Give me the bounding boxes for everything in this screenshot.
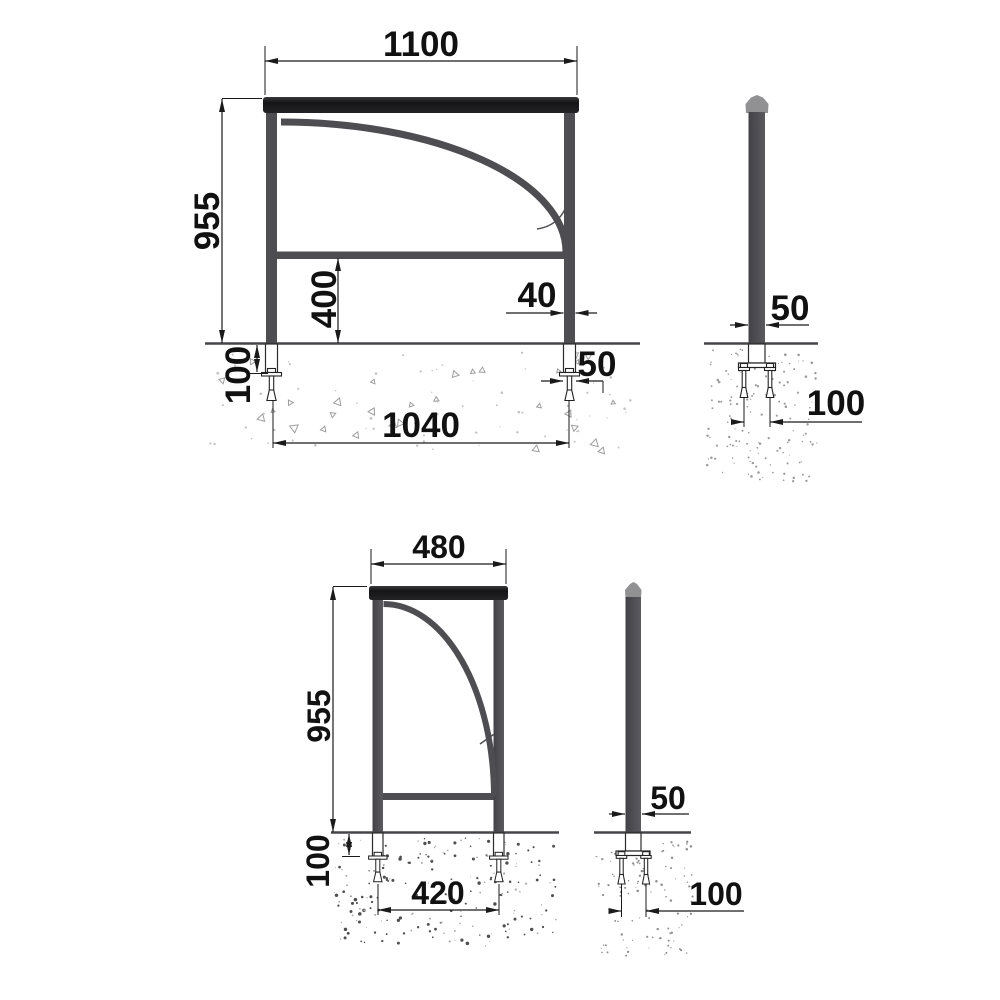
concrete-speckle (603, 944, 604, 945)
concrete-speckle (617, 920, 619, 922)
concrete-speckle (343, 839, 345, 841)
concrete-speckle (778, 401, 780, 403)
concrete-speckle (521, 352, 523, 354)
concrete-speckle (257, 414, 264, 422)
concrete-speckle (368, 408, 374, 415)
concrete-speckle (527, 849, 529, 851)
concrete-speckle (399, 916, 402, 919)
concrete-speckle (530, 928, 533, 931)
concrete-speckle (517, 843, 520, 846)
concrete-speckle (442, 852, 443, 853)
concrete-speckle (665, 896, 667, 898)
post (626, 597, 642, 833)
concrete-speckle (667, 928, 669, 930)
concrete-speckle (397, 942, 400, 945)
concrete-speckle (662, 850, 664, 852)
concrete-speckle (596, 856, 597, 857)
concrete-speckle (434, 847, 436, 849)
concrete-speckle (366, 897, 367, 898)
concrete-speckle (361, 896, 364, 899)
concrete-speckle (509, 881, 512, 884)
concrete-speckle (465, 838, 466, 839)
concrete-speckle (347, 932, 350, 935)
concrete-speckle (619, 887, 621, 889)
right-post (494, 599, 505, 833)
figure-front-view-small: 480 955 100 420 (300, 529, 559, 947)
concrete-speckle (629, 399, 632, 402)
concrete-speckle (338, 901, 340, 903)
concrete-speckle (346, 884, 348, 886)
concrete-speckle (487, 840, 490, 843)
concrete-speckle (618, 447, 620, 449)
concrete-speckle (551, 894, 554, 897)
concrete-speckle (417, 857, 419, 859)
concrete-speckle (797, 354, 800, 357)
concrete-speckle (493, 872, 495, 874)
concrete-speckle (811, 443, 813, 445)
concrete-speckle (789, 418, 791, 420)
post-cap (746, 95, 769, 113)
concrete-speckle (748, 432, 750, 434)
concrete-speckle (459, 923, 461, 925)
concrete-speckle (802, 360, 803, 361)
concrete-speckle (386, 933, 388, 935)
concrete-speckle (386, 919, 388, 921)
concrete-speckle (710, 362, 711, 363)
concrete-speckle (787, 381, 789, 383)
concrete-speckle (263, 413, 265, 415)
concrete-speckle (623, 407, 626, 410)
right-post (564, 112, 575, 343)
concrete-speckle (449, 940, 451, 942)
concrete-speckle (537, 932, 539, 934)
concrete-speckle (805, 480, 807, 482)
concrete-speckle (479, 445, 480, 446)
concrete-speckle (521, 412, 523, 414)
concrete-speckle (338, 866, 341, 869)
concrete-speckle (639, 875, 641, 877)
concrete-speckle (515, 889, 517, 891)
concrete-speckle (487, 935, 490, 938)
concrete-speckle (344, 936, 347, 939)
concrete-speckle (646, 936, 648, 938)
mid-rail (277, 252, 564, 260)
concrete-speckle (432, 448, 434, 450)
concrete-speckle (736, 386, 738, 388)
concrete-speckle (787, 442, 789, 444)
concrete-speckle (334, 892, 335, 893)
concrete-speckle (507, 891, 509, 893)
concrete-speckle (350, 910, 353, 913)
dim-label-embed-depth: 100 (300, 834, 336, 887)
concrete-speckle (635, 857, 637, 859)
concrete-speckle (670, 867, 672, 869)
concrete-speckle (371, 379, 375, 384)
concrete-speckle (794, 404, 795, 405)
concrete-speckle (402, 354, 404, 356)
concrete-speckle (431, 868, 433, 870)
concrete-speckle (783, 384, 785, 386)
curved-brace (384, 604, 495, 797)
concrete-speckle (572, 425, 579, 431)
concrete-speckle (712, 349, 714, 351)
concrete-speckle (801, 461, 802, 462)
anchor-bolt (560, 369, 580, 401)
concrete-speckle (454, 940, 455, 941)
concrete-speckle (810, 441, 812, 443)
concrete-speckle (784, 353, 787, 356)
concrete-speckle (452, 371, 459, 378)
concrete-speckle (383, 876, 386, 879)
dim-label-bolt-spacing: 100 (807, 384, 865, 423)
concrete-speckle (670, 899, 672, 901)
dim-label-bolt-spacing: 100 (689, 876, 742, 912)
concrete-speckle (479, 838, 480, 839)
concrete-speckle (251, 438, 253, 440)
concrete-speckle (681, 924, 683, 926)
concrete-speckle (532, 445, 539, 452)
concrete-speckle (503, 872, 505, 874)
concrete-speckle (803, 435, 804, 436)
barrier-drawing-svg: 1100 955 400 40 100 50 1040 50 (0, 0, 1000, 1000)
concrete-speckle (712, 407, 714, 409)
concrete-speckle (664, 954, 665, 955)
concrete-speckle (747, 406, 749, 408)
concrete-speckle (674, 846, 675, 847)
concrete-speckle (245, 426, 247, 428)
concrete-speckle (437, 401, 439, 403)
concrete-speckle (793, 368, 795, 370)
concrete-speckle (758, 453, 759, 454)
concrete-speckle (805, 433, 807, 435)
concrete-speckle (429, 918, 431, 920)
concrete-speckle (750, 450, 751, 451)
concrete-speckle (624, 887, 626, 889)
concrete-speckle (344, 928, 347, 931)
concrete-speckle (431, 370, 433, 372)
concrete-speckle (621, 933, 623, 935)
concrete-speckle (366, 428, 367, 429)
concrete-speckle (802, 474, 804, 476)
concrete-speckle (671, 932, 673, 934)
concrete-speckle (729, 444, 731, 446)
left-post (266, 112, 277, 343)
concrete-speckle (489, 941, 490, 942)
concrete-speckle (765, 457, 767, 459)
concrete-speckle (788, 439, 790, 441)
curved-brace (281, 122, 566, 252)
concrete-speckle (690, 845, 693, 848)
concrete-speckle (637, 883, 638, 884)
concrete-speckle (611, 400, 615, 404)
concrete-speckle (366, 927, 367, 928)
concrete-speckle (431, 392, 432, 393)
concrete-speckle (783, 473, 785, 475)
dim-label-post-depth: 50 (771, 289, 810, 328)
concrete-speckle (525, 883, 527, 885)
concrete-speckle (609, 394, 611, 396)
concrete-speckle (731, 379, 732, 380)
concrete-speckle (267, 442, 269, 444)
concrete-speckle (341, 922, 342, 923)
post (749, 112, 766, 344)
concrete-speckle (368, 883, 370, 885)
concrete-speckle (335, 390, 336, 391)
concrete-speckle (778, 363, 779, 364)
concrete-speckle (736, 403, 738, 405)
concrete-speckle (735, 352, 737, 354)
concrete-speckle (607, 884, 609, 886)
concrete-speckle (533, 846, 535, 848)
concrete-speckle (727, 421, 729, 423)
concrete-speckle (519, 891, 521, 893)
concrete-speckle (784, 403, 786, 405)
concrete-speckle (541, 914, 542, 915)
concrete-speckle (570, 413, 571, 414)
technical-drawing-canvas: 1100 955 400 40 100 50 1040 50 (0, 0, 1000, 1000)
concrete-speckle (806, 423, 808, 425)
concrete-speckle (381, 920, 382, 921)
concrete-speckle (517, 411, 520, 414)
concrete-speckle (499, 894, 501, 896)
concrete-speckle (356, 902, 358, 904)
concrete-speckle (541, 904, 542, 905)
concrete-speckle (750, 399, 751, 400)
concrete-speckle (343, 844, 346, 847)
concrete-speckle (623, 939, 624, 940)
concrete-speckle (516, 863, 517, 864)
concrete-speckle (589, 415, 590, 416)
concrete-speckle (671, 857, 673, 859)
concrete-speckle (373, 870, 375, 872)
concrete-speckle (612, 874, 613, 875)
concrete-speckle (538, 864, 540, 866)
concrete-speckle (779, 381, 781, 383)
dim-label-overall-width: 1100 (383, 25, 459, 64)
concrete-speckle (776, 450, 778, 452)
concrete-speckle (423, 842, 426, 845)
concrete-speckle (731, 396, 733, 398)
concrete-speckle (505, 861, 508, 864)
concrete-speckle (549, 882, 550, 883)
concrete-speckle (638, 860, 640, 862)
concrete-speckle (342, 890, 345, 893)
concrete-speckle (383, 864, 385, 866)
concrete-speckle (417, 926, 419, 928)
concrete-speckle (434, 928, 437, 931)
concrete-speckle (476, 856, 478, 858)
concrete-speckle (668, 940, 670, 942)
concrete-speckle (427, 923, 430, 926)
concrete-speckle (421, 862, 423, 864)
concrete-speckle (706, 435, 708, 437)
concrete-speckle (460, 939, 463, 942)
concrete-speckle (746, 443, 748, 445)
dim-label-anchor-width: 50 (578, 345, 617, 384)
concrete-speckle (619, 895, 621, 897)
concrete-speckle (808, 476, 810, 478)
concrete-speckle (389, 878, 390, 879)
concrete-speckle (714, 458, 716, 460)
concrete-speckle (485, 945, 486, 946)
concrete-speckle (793, 477, 795, 479)
concrete-speckle (598, 886, 599, 887)
concrete-speckle (374, 914, 376, 916)
concrete-speckle (479, 934, 480, 935)
concrete-speckle (553, 878, 556, 881)
concrete-speckle (648, 917, 650, 919)
concrete-speckle (757, 385, 759, 387)
concrete-speckle (504, 841, 506, 843)
concrete-speckle (506, 852, 509, 855)
concrete-speckle (290, 425, 299, 433)
concrete-speckle (500, 426, 501, 427)
figure-side-view-large: 50 100 (704, 95, 865, 482)
anchor-bolt (641, 852, 651, 884)
concrete-speckle (525, 368, 527, 370)
concrete-speckle (748, 474, 749, 475)
concrete-speckle (514, 910, 515, 911)
concrete-speckle (789, 455, 790, 456)
concrete-speckle (431, 859, 433, 861)
concrete-speckle (427, 855, 429, 857)
concrete-speckle (518, 881, 520, 883)
concrete-speckle (770, 464, 771, 465)
concrete-speckle (708, 458, 709, 459)
concrete-speckle (516, 431, 518, 433)
concrete-speckle (513, 913, 514, 914)
concrete-speckle (783, 371, 785, 373)
concrete-speckle (751, 395, 753, 397)
concrete-speckle (750, 475, 753, 478)
concrete-speckle (373, 428, 375, 430)
concrete-speckle (576, 419, 577, 420)
concrete-speckle (690, 913, 692, 915)
concrete-speckle (625, 412, 626, 413)
concrete-speckle (735, 428, 736, 429)
concrete-speckle (403, 932, 405, 934)
concrete-speckle (757, 471, 760, 474)
concrete-speckle (710, 364, 712, 366)
concrete-speckle (574, 441, 576, 443)
concrete-speckle (755, 384, 757, 386)
concrete-speckle (477, 881, 480, 884)
concrete-speckle (443, 932, 445, 934)
concrete-speckle (353, 432, 359, 438)
anchor-bolt (739, 364, 750, 398)
concrete-speckle (665, 866, 667, 868)
dim-label-embed-depth: 100 (219, 346, 258, 404)
concrete-speckle (435, 846, 436, 847)
concrete-speckle (677, 844, 679, 846)
concrete-speckle (707, 428, 709, 430)
top-rail-bar (369, 586, 508, 600)
post-embedded-stub (749, 344, 766, 363)
concrete-speckle (711, 399, 713, 401)
concrete-speckle (507, 936, 509, 938)
concrete-speckle (405, 883, 407, 885)
concrete-speckle (337, 904, 339, 906)
concrete-speckle (412, 913, 414, 915)
concrete-speckle (728, 436, 730, 438)
concrete-speckle (530, 918, 532, 920)
concrete-speckle (321, 426, 326, 432)
concrete-speckle (753, 393, 755, 395)
anchor-bolt (765, 364, 776, 398)
concrete-speckle (538, 860, 540, 862)
concrete-speckle (470, 846, 472, 848)
concrete-speckle (514, 918, 517, 921)
concrete-speckle (566, 429, 567, 430)
concrete-speckle (369, 895, 372, 898)
concrete-speckle (350, 895, 351, 896)
concrete-speckle (686, 841, 688, 843)
concrete-speckle (460, 915, 462, 917)
concrete-speckle (364, 942, 366, 944)
concrete-speckle (503, 924, 506, 927)
concrete-speckle (432, 936, 434, 938)
concrete-speckle (375, 372, 378, 375)
concrete-speckle (386, 877, 388, 879)
concrete-speckle (649, 885, 650, 886)
concrete-speckle (679, 927, 680, 928)
concrete-speckle (606, 417, 607, 418)
concrete-speckle (720, 401, 722, 403)
concrete-speckle (334, 398, 341, 406)
concrete-speckle (709, 437, 710, 438)
concrete-speckle (755, 466, 757, 468)
concrete-speckle (490, 878, 492, 880)
concrete-speckle (686, 843, 688, 845)
concrete-speckle (462, 405, 464, 407)
concrete-speckle (442, 364, 444, 366)
concrete-speckle (505, 844, 506, 845)
concrete-speckle (545, 909, 547, 911)
concrete-speckle (759, 442, 761, 444)
concrete-speckle (385, 845, 387, 847)
concrete-speckle (738, 356, 739, 357)
concrete-speckle (711, 385, 713, 387)
concrete-speckle (288, 361, 289, 362)
concrete-speckle (792, 480, 794, 482)
concrete-speckle (610, 861, 611, 862)
concrete-speckle (741, 349, 743, 351)
concrete-speckle (330, 413, 336, 418)
concrete-speckle (631, 920, 633, 922)
concrete-speckle (465, 903, 467, 905)
concrete-speckle (524, 934, 526, 936)
concrete-speckle (454, 930, 456, 932)
dim-label-post-width: 40 (518, 276, 557, 315)
concrete-speckle (410, 930, 412, 932)
concrete-speckle (686, 952, 687, 953)
concrete-speckle (473, 380, 474, 381)
concrete-speckle (441, 922, 443, 924)
concrete-speckle (627, 951, 629, 953)
concrete-speckle (636, 861, 638, 863)
concrete-speckle (341, 869, 342, 870)
concrete-speckle (752, 462, 754, 464)
concrete-speckle (675, 878, 676, 879)
concrete-speckle (470, 890, 472, 892)
left-post (373, 599, 384, 833)
concrete-speckle (359, 908, 361, 910)
concrete-speckle (736, 446, 737, 447)
concrete-speckle (371, 901, 373, 903)
concrete-speckle (370, 417, 373, 420)
concrete-speckle (781, 362, 782, 363)
concrete-speckle (737, 354, 739, 356)
